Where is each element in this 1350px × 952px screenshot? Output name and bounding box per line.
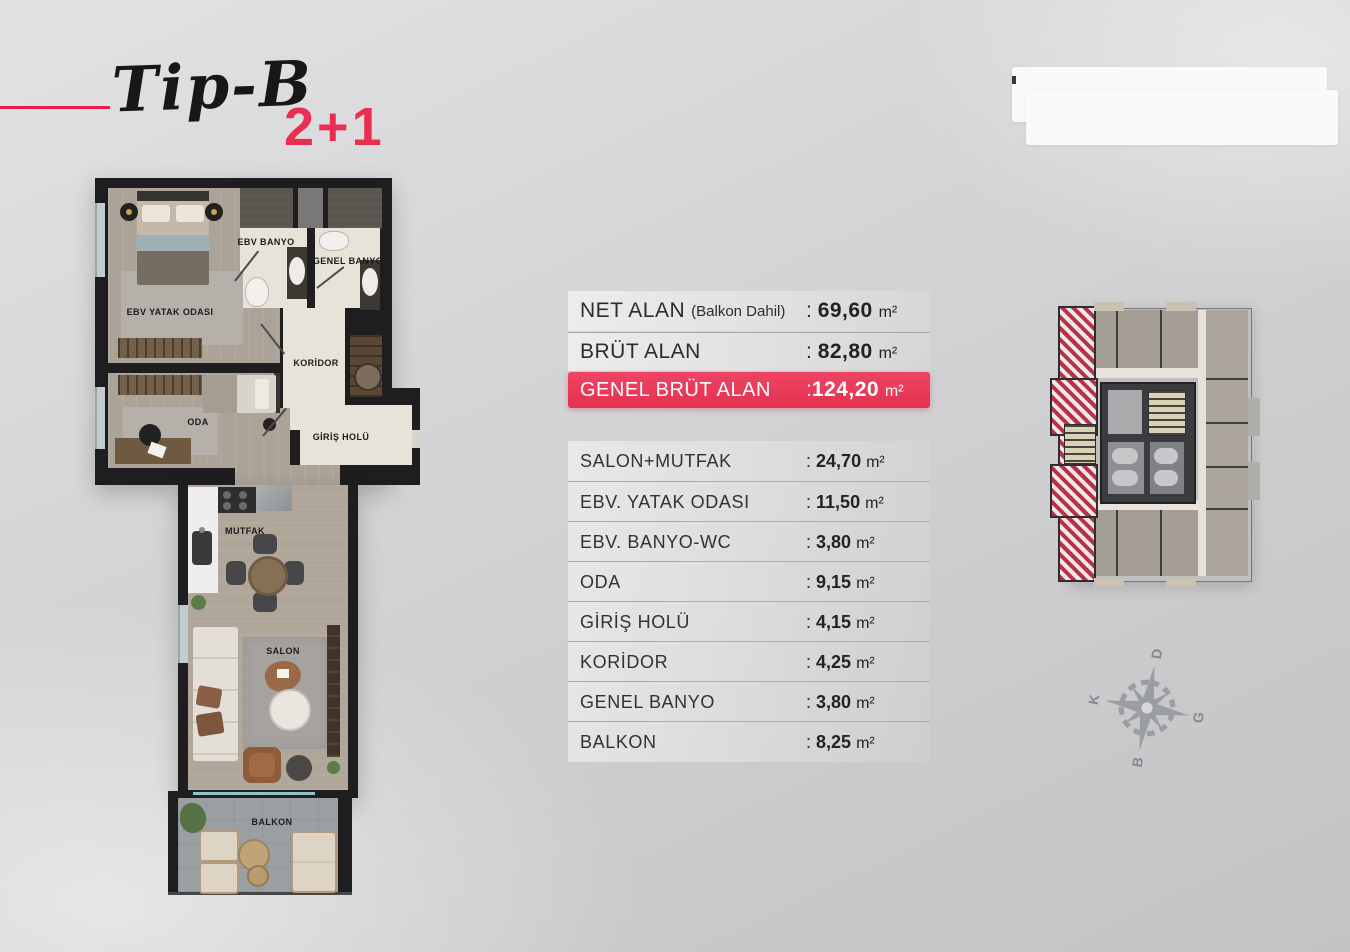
logo-placeholder-front [1026,90,1338,145]
summary-row-brut-alan: BRÜT ALAN : 82,80 m² [568,333,930,371]
dining-chair [253,534,277,554]
lamp-glow [126,209,132,215]
living-window [178,605,188,663]
kitchen-opening [290,465,340,485]
single-bed-pillow [255,379,269,409]
wardrobe [118,338,202,358]
highlighted-unit-zone [1050,464,1098,518]
room-row: KORİDOR : 4,25 m² [568,641,930,682]
bed-pillow [142,205,170,222]
unit-wall [1116,510,1118,576]
room-row: BALKON : 8,25 m² [568,721,930,762]
room-row: EBV. BANYO-WC : 3,80 m² [568,521,930,562]
sink [289,257,305,285]
balcony-wall-left [168,791,178,895]
summary-value: :124,20 m² [806,378,904,402]
unit-entry-strip [1198,310,1206,576]
lamp-glow [211,209,217,215]
kitchen-counter-corner [188,487,218,501]
balcony-tab [1166,302,1196,311]
sofa-pillow [195,685,222,709]
bed-throw [137,235,209,251]
kitchen-plant [191,595,206,610]
unit-wall [1160,310,1162,374]
wardrobe [118,375,202,395]
core-room [1108,390,1142,434]
coffee-tray [277,669,289,678]
room-row: GENEL BANYO : 3,80 m² [568,681,930,722]
unit-type-label: 2+1 [284,96,385,158]
compass-east-label: D [1148,647,1166,660]
balcony-tab [1248,398,1260,436]
balcony-wall-right [338,791,352,895]
balcony-tab [1248,462,1260,500]
label-kitchen: MUTFAK [225,526,265,536]
dining-chair [226,561,246,585]
floor-plan-sheet: Tip-B 2+1 NET ALAN (Balkon Dahil) : 69,6… [0,0,1350,952]
compass-west-label: B [1129,756,1147,769]
elevator-car [1112,448,1138,464]
entrance-door-gap [412,430,420,448]
balcony-tab [1166,578,1196,587]
label-balcony: BALKON [252,817,293,827]
passage-floor [235,408,290,485]
balcony-table-small [247,865,269,887]
summary-value: : 69,60 m² [806,299,897,323]
logo-remnant-mark [1012,76,1016,84]
core-stairs [1148,390,1186,436]
label-living-room: SALON [266,646,300,656]
key-plan-stairs [1064,424,1096,464]
accent-line [0,106,110,109]
bedroom-window [95,203,105,277]
room-row: GİRİŞ HOLÜ : 4,15 m² [568,601,930,642]
balcony-chair [199,862,239,894]
area-summary-table: NET ALAN (Balkon Dahil) : 69,60 m² BRÜT … [568,291,930,411]
balcony-plant [180,803,206,833]
toilet [245,277,269,307]
unit-wall [1116,310,1118,374]
room-row: ODA : 9,15 m² [568,561,930,602]
burner [223,491,231,499]
armchair-cushion [249,753,275,777]
label-room: ODA [187,417,208,427]
elevator-car [1154,470,1178,486]
summary-label: GENEL BRÜT ALAN [580,379,771,402]
label-general-bath: GENEL BANYO [313,256,383,266]
compass-north-label: K [1085,693,1103,706]
summary-value: : 82,80 m² [806,340,897,364]
compass-south-label: G [1189,711,1207,725]
compass-star-icon [1097,658,1197,758]
burner [239,491,247,499]
label-master-bedroom: EBV YATAK ODASI [127,307,214,317]
single-bed-blanket [203,375,237,413]
kitchen-sink [192,531,212,565]
marble-side-table [269,689,311,731]
balcony-glass-door [193,792,315,795]
summary-note: (Balkon Dahil) [691,303,785,320]
apartment-floor-plan: EBV YATAK ODASI ODA EBV BANYO GENEL BANY… [95,175,420,900]
elevator-car [1154,448,1178,464]
burner [223,502,231,510]
bed-pillow [176,205,204,222]
bed-duvet [137,251,209,285]
washing-machine [354,363,382,391]
label-master-bath: EBV BANYO [237,237,294,247]
dining-table [248,556,288,596]
summary-row-genel-brut-alan: GENEL BRÜT ALAN :124,20 m² [568,372,930,408]
burner [239,502,247,510]
unit-wall [1160,510,1162,576]
fridge [256,485,292,511]
label-corridor: KORİDOR [293,358,338,368]
sofa-pillow [195,711,224,737]
master-bath-shower [240,188,293,228]
label-entrance-hall: GİRİŞ HOLÜ [313,432,370,442]
living-plant [327,761,340,774]
balcony-chair [199,830,239,862]
balcony-tab [1094,578,1124,587]
balcony-tab [1094,302,1124,311]
bed-headboard [137,191,209,201]
room-window [95,387,105,449]
sink [362,268,378,296]
installation-shaft [298,188,323,228]
room-areas-table: SALON+MUTFAK : 24,70 m² EBV. YATAK ODASI… [568,441,930,761]
balcony-loveseat [291,831,337,893]
key-plan [1050,302,1262,587]
room-row: EBV. YATAK ODASI : 11,50 m² [568,481,930,522]
general-bath-shower [328,188,382,228]
tv-console [327,625,340,757]
toilet [319,231,349,251]
summary-row-net-alan: NET ALAN (Balkon Dahil) : 69,60 m² [568,291,930,331]
compass-rose: K D G B [1077,638,1216,777]
faucet [199,527,205,533]
pouf [286,755,312,781]
elevator-car [1112,470,1138,486]
room-row: SALON+MUTFAK : 24,70 m² [568,441,930,481]
summary-label: NET ALAN [580,299,685,323]
summary-label: BRÜT ALAN [580,340,701,364]
